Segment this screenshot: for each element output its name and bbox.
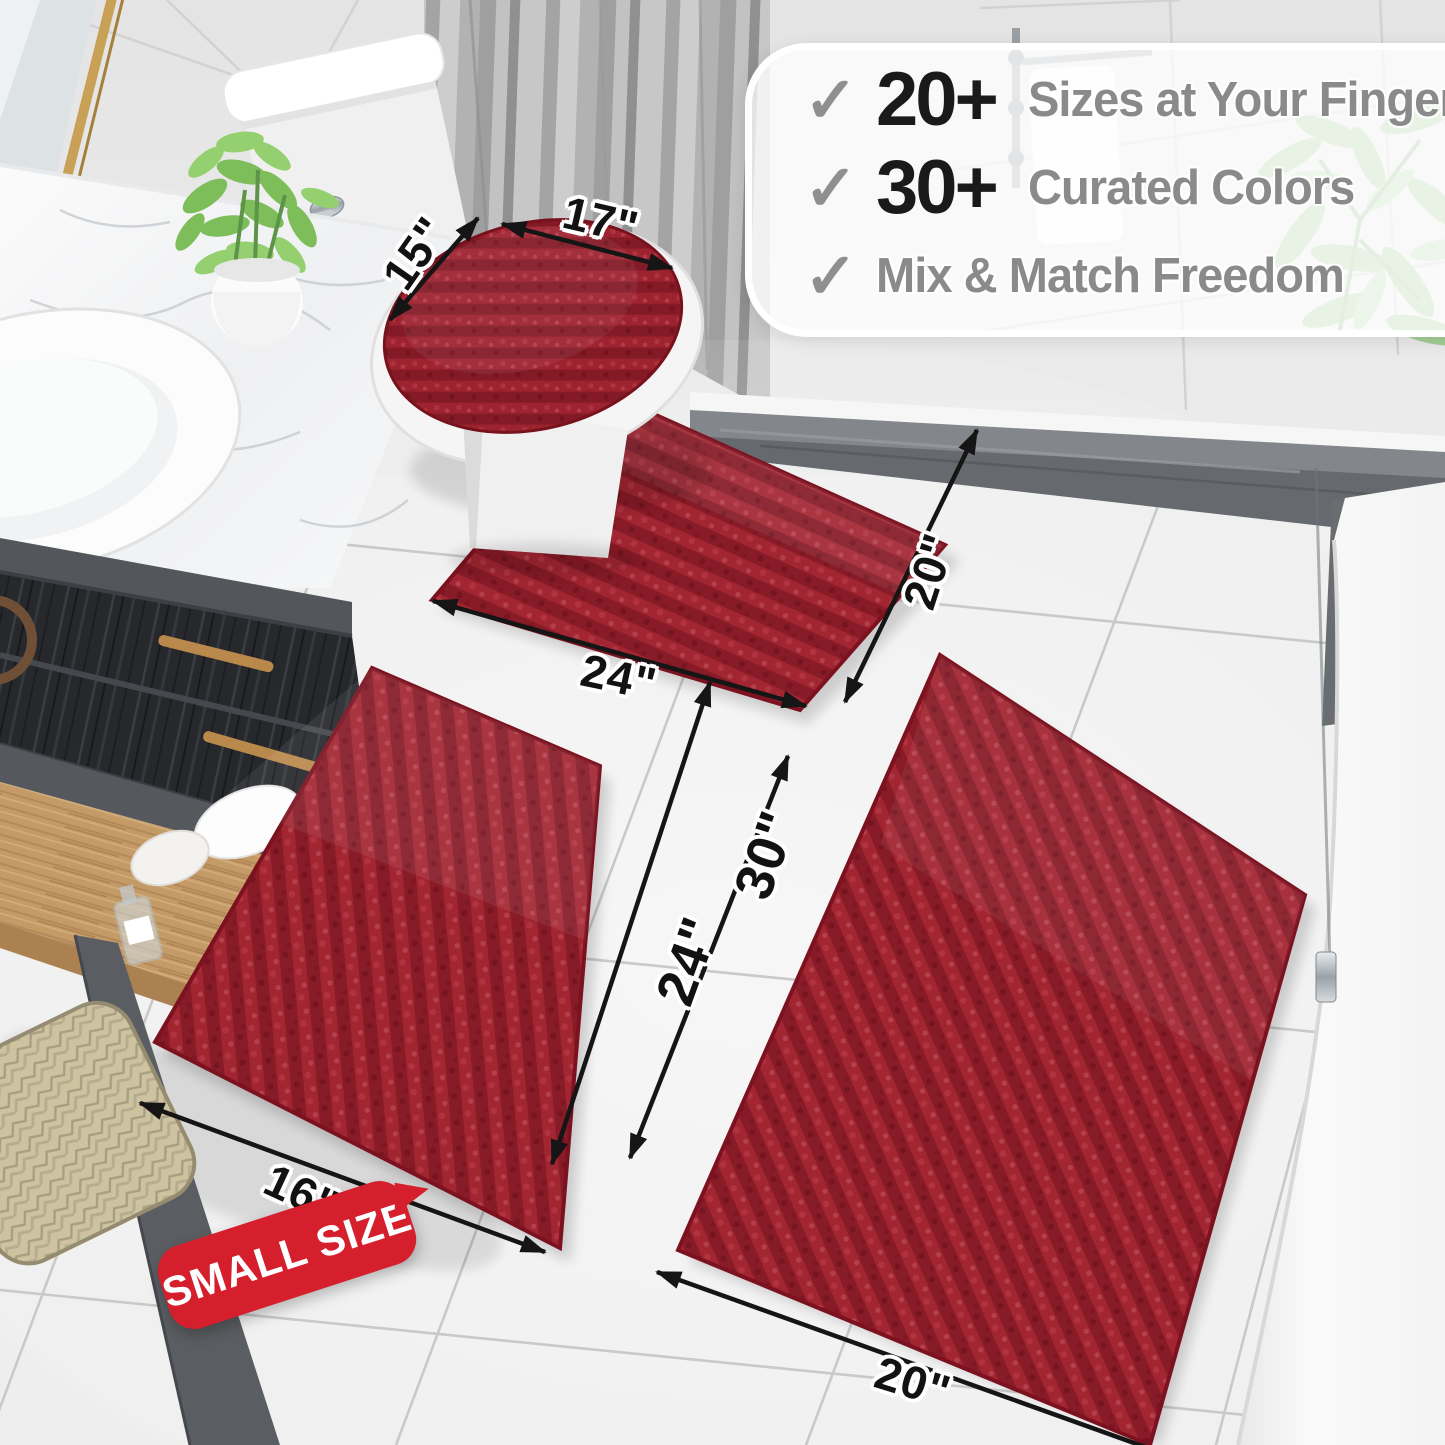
dimension-arrows — [0, 0, 1445, 1445]
product-image: 15" 17" 24" 20" 30" 24" 16" 20" ✓ 20+ Si… — [0, 0, 1445, 1445]
